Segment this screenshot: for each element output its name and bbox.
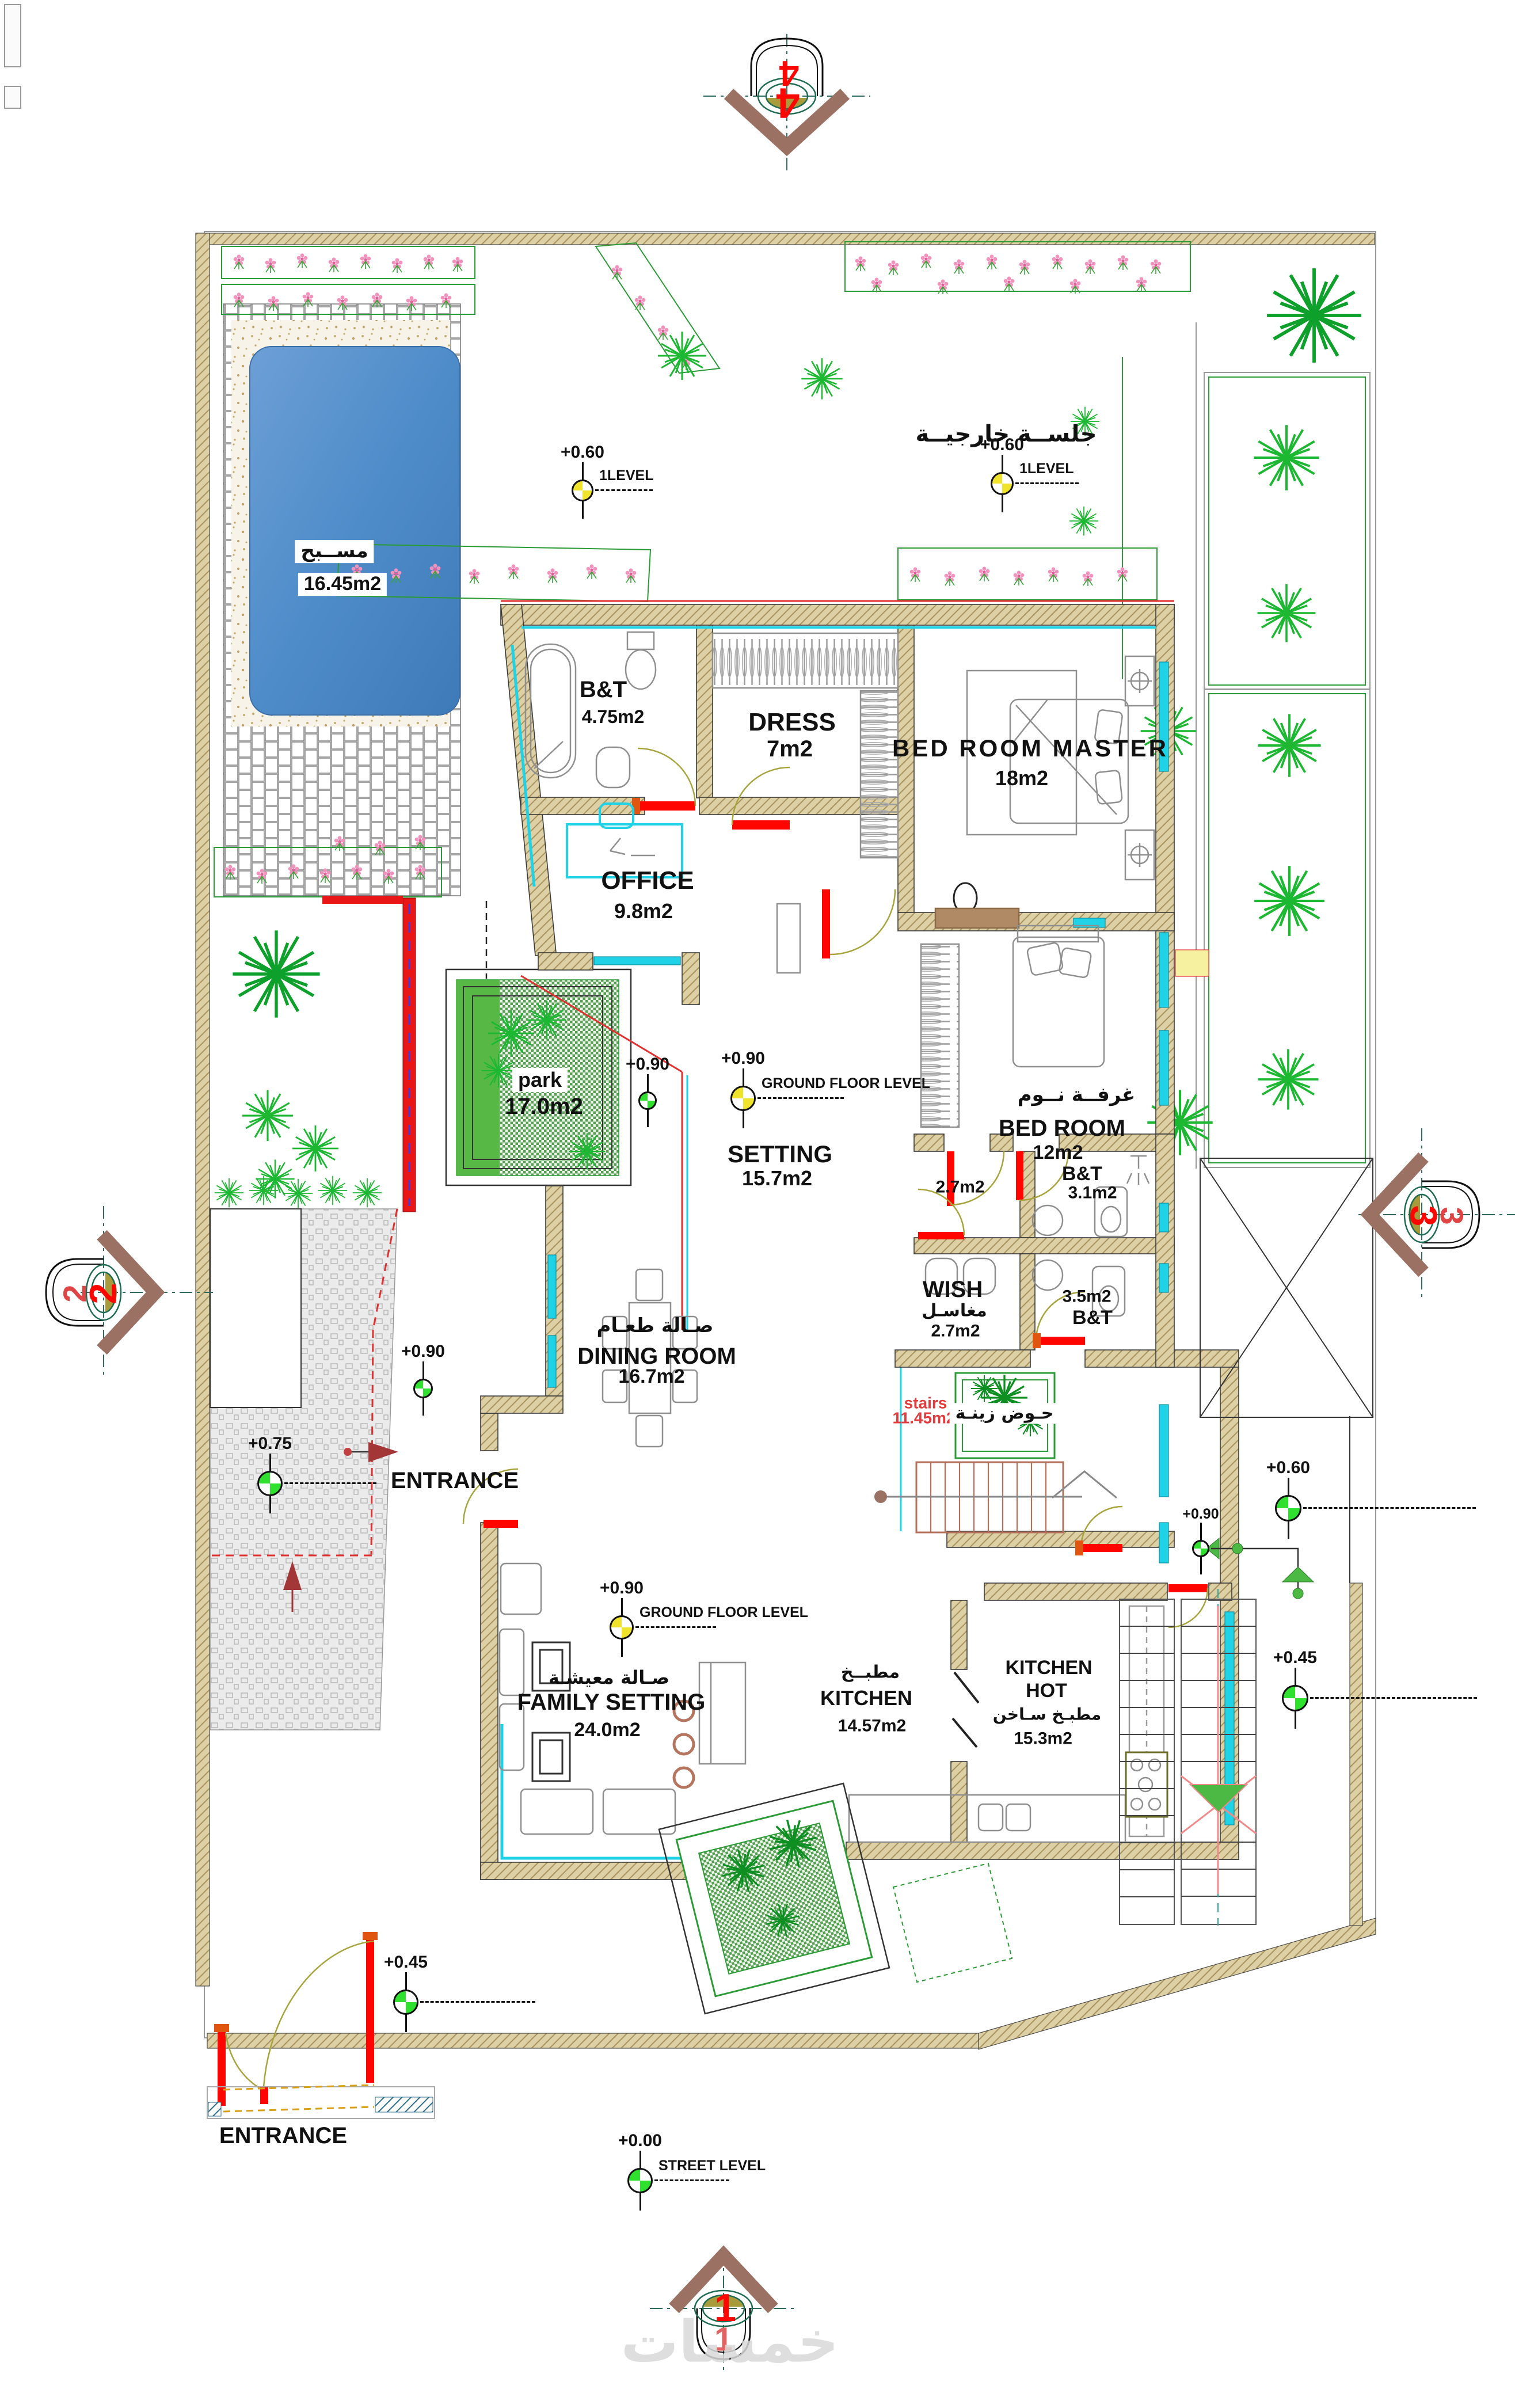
interior-stairs xyxy=(874,1462,1117,1532)
toilet-tank xyxy=(627,632,654,649)
level-value: +0.45 xyxy=(1249,1648,1341,1668)
level-value: +0.90 xyxy=(1155,1506,1247,1523)
wish-label: WISH xyxy=(923,1277,983,1302)
bt3-label: B&T xyxy=(1072,1308,1113,1329)
section-marker-top: 4 4 xyxy=(703,34,870,171)
toilet xyxy=(626,650,656,689)
level-circle xyxy=(1275,1495,1301,1521)
closet-rack xyxy=(921,944,959,1127)
level-value: +0.45 xyxy=(360,1953,452,1972)
kitchen-hot-label-2: HOT xyxy=(1026,1681,1067,1702)
kitchen-label: KITCHEN xyxy=(820,1687,912,1709)
pergola-lattice xyxy=(1200,1158,1373,1417)
setting-area: 15.7m2 xyxy=(742,1167,812,1189)
watermark: خمسات xyxy=(621,2308,839,2376)
sofa xyxy=(500,1629,524,1695)
small-green-square xyxy=(893,1863,1012,1982)
pool-zone xyxy=(223,304,460,896)
plan-linework: 4 4 2 2 3 3 1 1 xyxy=(0,0,1515,2408)
closet-rack xyxy=(861,691,898,858)
cupboard xyxy=(777,904,800,973)
kitchen-counter xyxy=(849,1795,1125,1842)
entrance-gate-label: ENTRANCE xyxy=(219,2124,347,2148)
level-label: GROUND FLOOR LEVEL xyxy=(762,1075,930,1092)
level-circle xyxy=(393,1989,418,2015)
stairs-area: 11.45m2 xyxy=(893,1409,956,1426)
gate-area xyxy=(207,2085,435,2118)
section-marker-right: 3 3 xyxy=(1358,1128,1515,1301)
park-area: 17.0m2 xyxy=(505,1094,583,1119)
sofa xyxy=(501,1564,541,1614)
sink xyxy=(596,747,630,788)
wish-label-ar: مغاسـل xyxy=(922,1302,987,1320)
bedroom-label-ar: غرفــة نــوم xyxy=(1018,1085,1136,1106)
kitchen-sink xyxy=(1006,1804,1030,1831)
level-value: +0.00 xyxy=(594,2131,686,2151)
room27-area: 2.7m2 xyxy=(935,1178,984,1196)
swimming-pool xyxy=(250,347,460,715)
bt2-label: B&T xyxy=(1062,1164,1102,1185)
dresser xyxy=(935,908,1019,928)
level-circle xyxy=(627,2168,653,2193)
dining-label: DINING ROOM xyxy=(577,1344,736,1368)
kitchen-hot-label-1: KITCHEN xyxy=(1005,1658,1092,1679)
svg-text:2: 2 xyxy=(81,1283,124,1304)
level-circle xyxy=(257,1471,283,1496)
dining-label-ar: صـالة طعـام xyxy=(597,1316,714,1337)
level-circle xyxy=(991,472,1014,495)
level-value: +0.90 xyxy=(697,1049,789,1068)
svg-text:3: 3 xyxy=(1403,1205,1445,1227)
level-label: GROUND FLOOR LEVEL xyxy=(640,1604,808,1621)
driveway xyxy=(210,1209,398,1730)
diamond-planter xyxy=(659,1783,889,2014)
office-area: 9.8m2 xyxy=(614,900,673,922)
sink xyxy=(1033,1260,1063,1290)
level-circle xyxy=(1282,1685,1308,1711)
level-circle xyxy=(1192,1540,1209,1557)
level-value: +0.90 xyxy=(602,1055,694,1074)
level-value: +0.75 xyxy=(224,1434,316,1454)
bedroom-label: BED ROOM xyxy=(999,1116,1125,1140)
chair xyxy=(636,1416,663,1447)
family-label-ar: صـالة معيشـة xyxy=(549,1668,669,1688)
kitchen-hot-area: 15.3m2 xyxy=(1014,1729,1072,1748)
park-label: park xyxy=(512,1068,568,1092)
pool-area: 16.45m2 xyxy=(298,573,387,596)
level-circle xyxy=(730,1086,756,1111)
sofa xyxy=(521,1789,593,1834)
level-label: STREET LEVEL xyxy=(658,2158,766,2174)
kitchen-area: 14.57m2 xyxy=(838,1717,906,1735)
planter-label-ar: حـوض زينـة xyxy=(950,1403,1060,1424)
kitchen-hot-label-ar: مطبـخ سـاخن xyxy=(993,1706,1102,1722)
bt1-label: B&T xyxy=(580,678,627,702)
family-area: 24.0m2 xyxy=(574,1720,640,1741)
svg-text:4: 4 xyxy=(776,79,800,127)
kitchen-sink xyxy=(979,1804,1003,1831)
entrance-main-label: ENTRANCE xyxy=(391,1469,519,1493)
chair xyxy=(636,1269,663,1300)
level-value: +0.60 xyxy=(956,435,1048,455)
sink xyxy=(1033,1205,1063,1235)
dress-area: 7m2 xyxy=(767,737,813,761)
dress-label: DRESS xyxy=(748,709,836,736)
pool-label-ar: مســبح xyxy=(295,540,374,563)
level-circle xyxy=(413,1379,433,1398)
bt3-area: 3.5m2 xyxy=(1062,1287,1111,1306)
shower-head xyxy=(1127,1156,1149,1185)
section-marker-left: 2 2 xyxy=(46,1206,213,1379)
closet-rack xyxy=(713,633,898,688)
level-circle xyxy=(638,1091,657,1110)
bt2-area: 3.1m2 xyxy=(1068,1184,1117,1202)
level-label: 1LEVEL xyxy=(1019,461,1074,477)
level-value: +0.60 xyxy=(536,443,629,462)
bar-stool xyxy=(674,1768,694,1787)
master-label: BED ROOM MASTER xyxy=(892,736,1168,761)
floor-plan-canvas: 4 4 2 2 3 3 1 1 مســبح 16.45m2 جلســة خا… xyxy=(0,0,1515,2408)
kitchen-island xyxy=(699,1663,745,1764)
level-circle xyxy=(572,480,593,501)
kitchen-label-ar: مطبــخ xyxy=(841,1663,900,1682)
pillow xyxy=(1095,770,1122,804)
level-value: +0.90 xyxy=(576,1578,668,1598)
level-value: +0.90 xyxy=(377,1342,469,1361)
dining-area: 16.7m2 xyxy=(618,1367,684,1387)
wish-area: 2.7m2 xyxy=(931,1322,980,1340)
family-label: FAMILY SETTING xyxy=(517,1690,706,1714)
level-circle xyxy=(610,1615,634,1639)
setting-label: SETTING xyxy=(728,1142,832,1167)
level-value: +0.60 xyxy=(1242,1458,1334,1478)
level-label: 1LEVEL xyxy=(599,467,653,484)
bt1-area: 4.75m2 xyxy=(582,707,645,727)
master-area: 18m2 xyxy=(995,767,1048,789)
pillow xyxy=(1027,942,1064,976)
bar-stool xyxy=(674,1734,694,1754)
office-label: OFFICE xyxy=(601,868,694,894)
pillow xyxy=(1059,948,1091,978)
bedroom-area: 12m2 xyxy=(1033,1143,1083,1163)
